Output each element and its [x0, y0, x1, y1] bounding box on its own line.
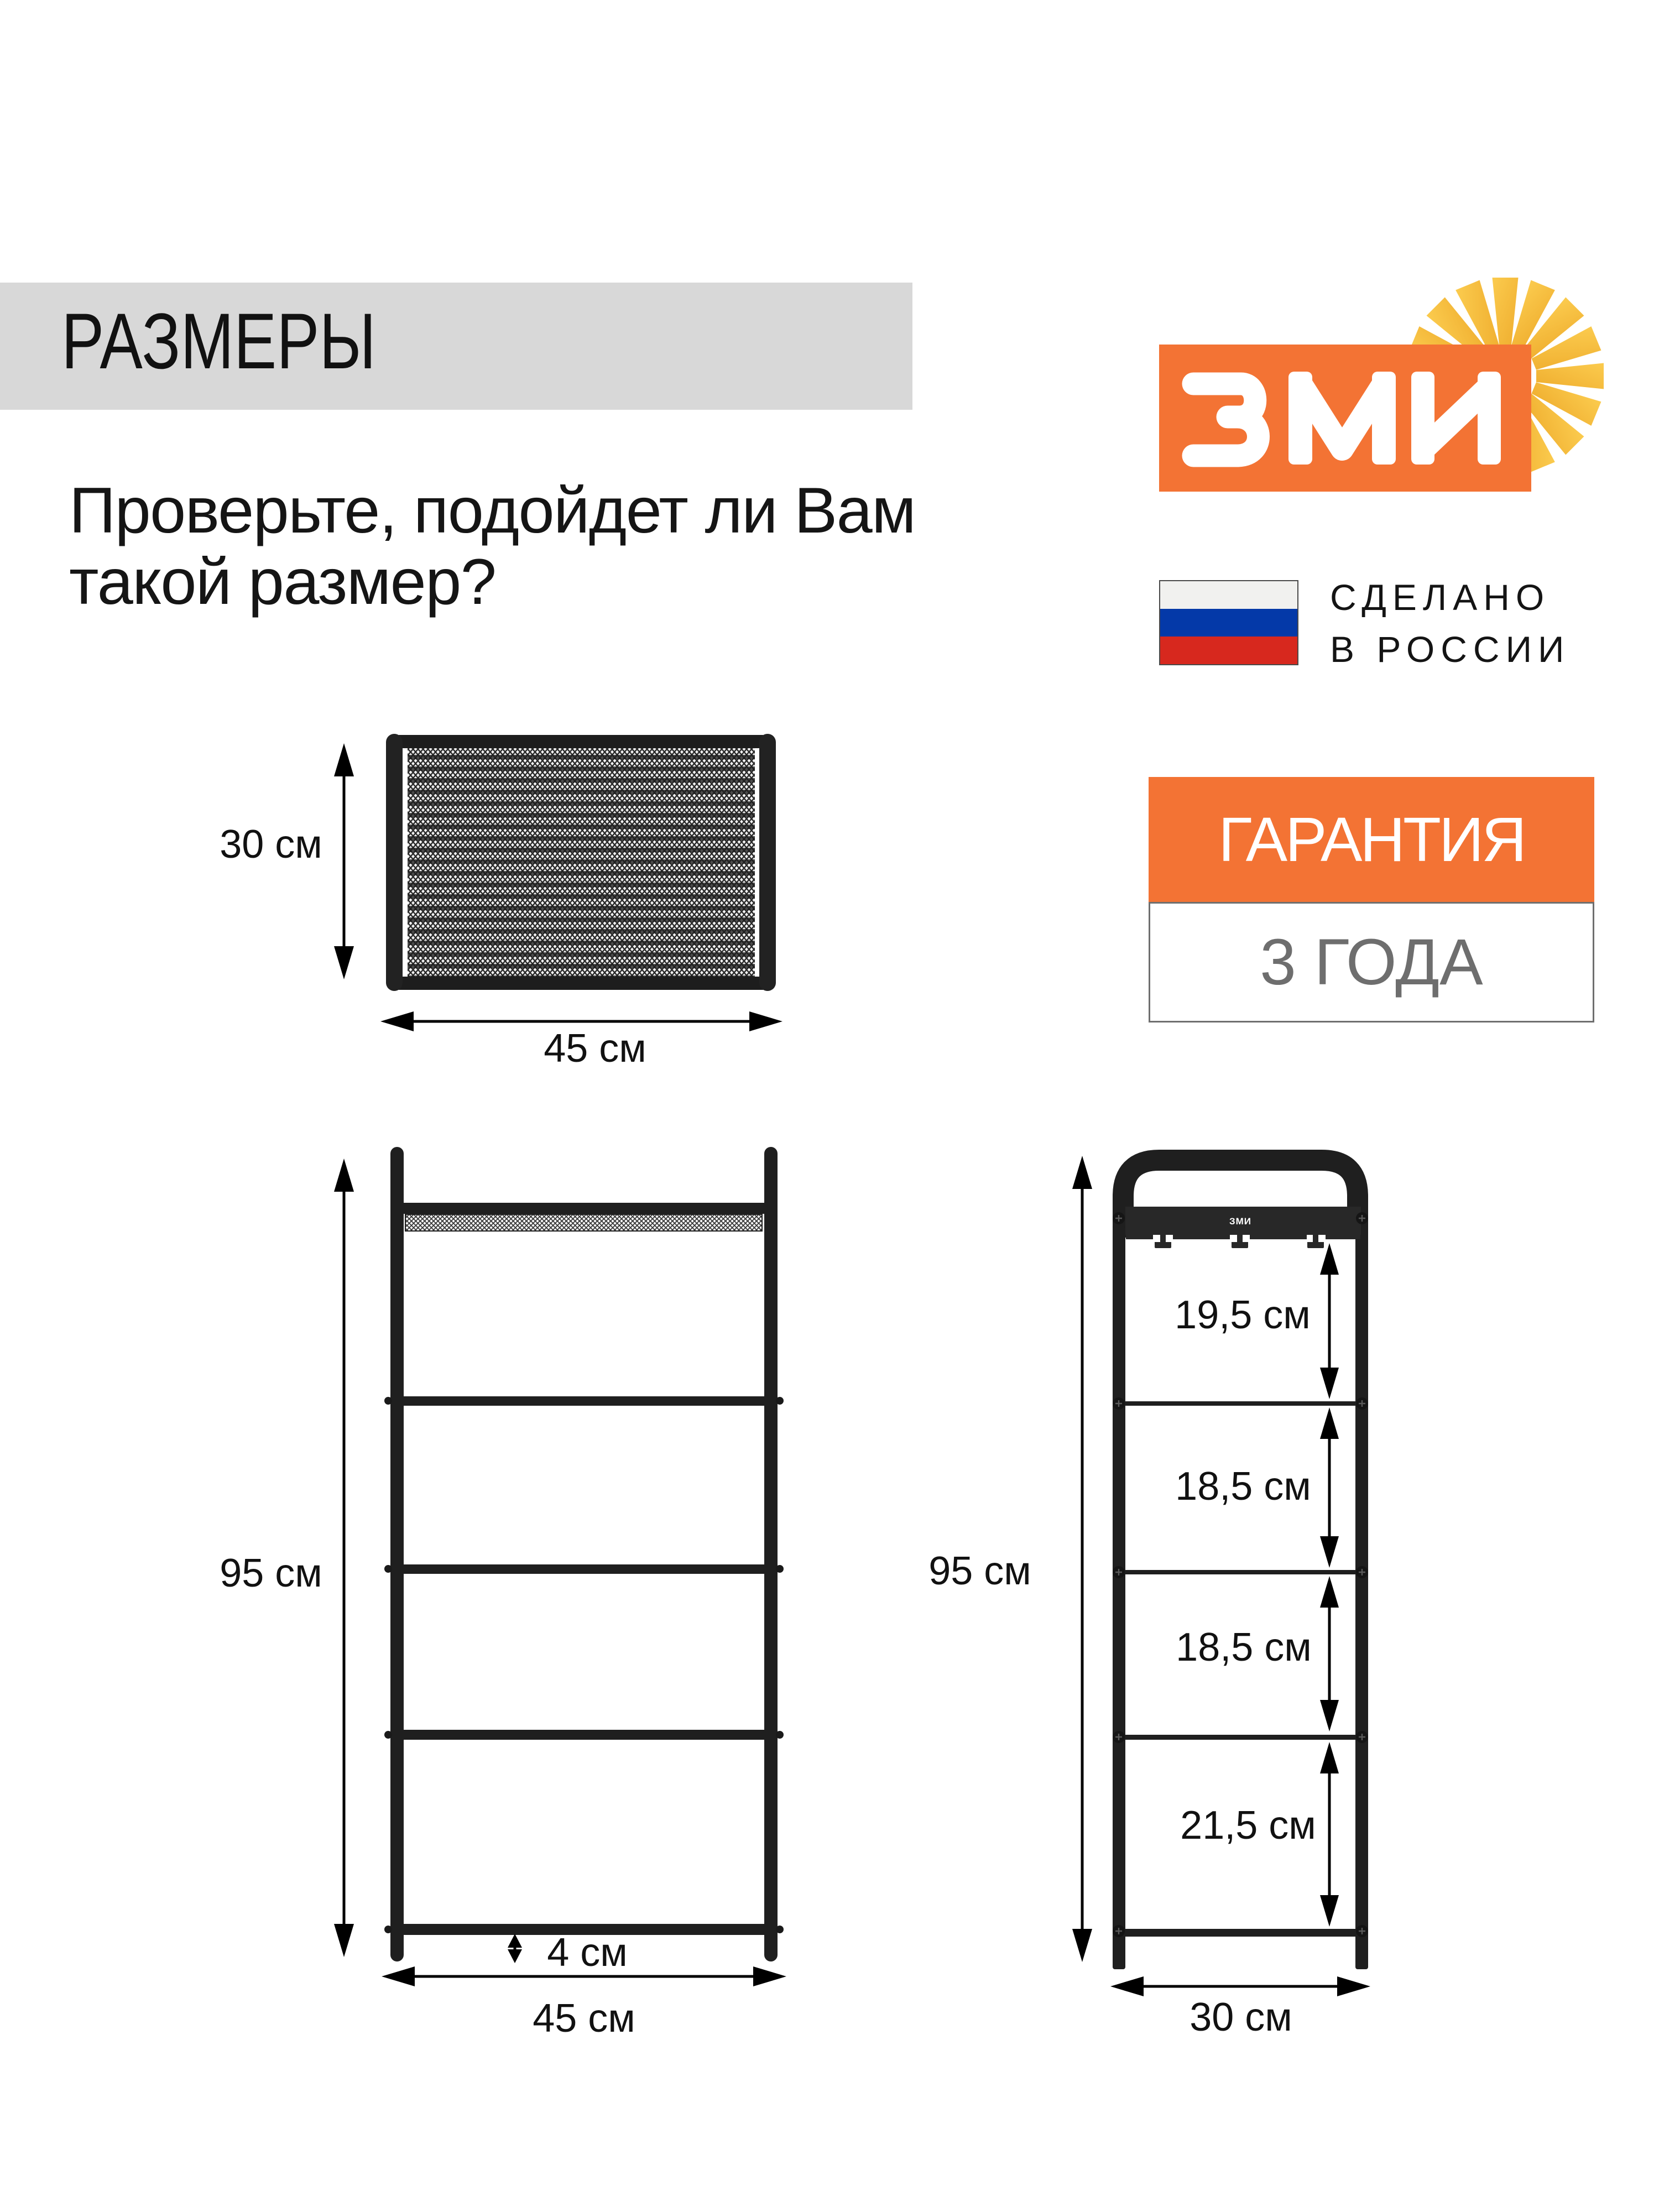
svg-text:45 см: 45 см: [544, 1026, 646, 1071]
svg-text:45 см: 45 см: [533, 1996, 635, 2041]
svg-text:95 см: 95 см: [928, 1549, 1031, 1593]
svg-text:18,5 см: 18,5 см: [1176, 1625, 1312, 1670]
svg-text:30 см: 30 см: [1190, 1995, 1292, 2039]
svg-text:ЗМИ: ЗМИ: [1229, 1216, 1251, 1227]
svg-text:18,5 см: 18,5 см: [1175, 1464, 1311, 1509]
svg-text:19,5 см: 19,5 см: [1175, 1293, 1311, 1337]
svg-text:95 см: 95 см: [220, 1551, 322, 1595]
svg-text:21,5 см: 21,5 см: [1180, 1803, 1316, 1848]
svg-text:30 см: 30 см: [220, 822, 322, 867]
svg-text:4 см: 4 см: [547, 1931, 628, 1975]
